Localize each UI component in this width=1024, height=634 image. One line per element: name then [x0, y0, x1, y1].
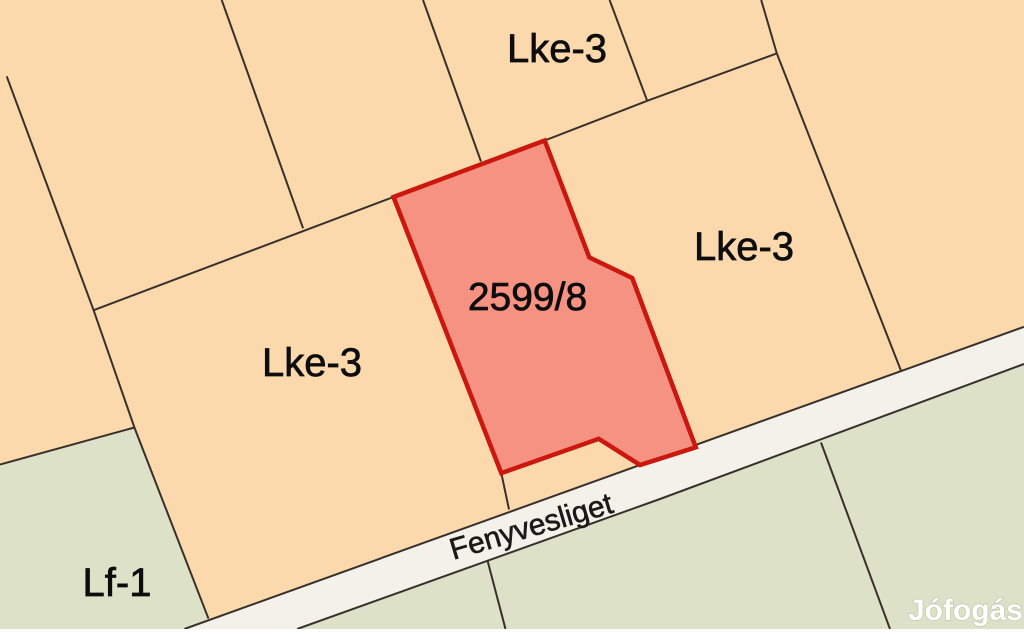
svg-text:2599/8: 2599/8 — [468, 276, 587, 319]
svg-text:Lke-3: Lke-3 — [262, 341, 362, 385]
svg-text:Jófogás: Jófogás — [908, 594, 1023, 627]
svg-text:Lke-3: Lke-3 — [694, 225, 794, 269]
svg-text:Lf-1: Lf-1 — [83, 561, 152, 605]
svg-text:Lke-3: Lke-3 — [507, 27, 607, 71]
